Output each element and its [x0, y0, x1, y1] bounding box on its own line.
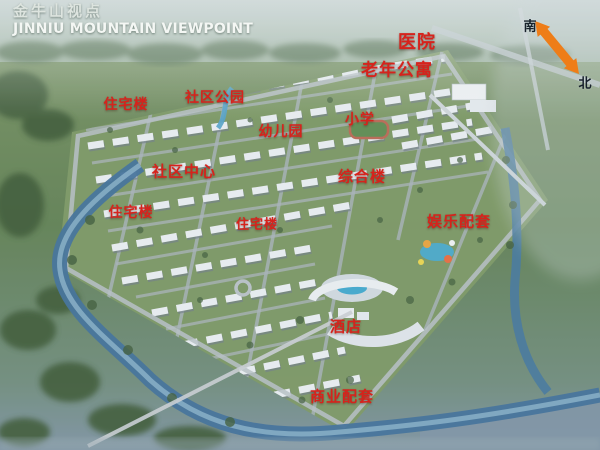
- aerial-scene: [0, 0, 600, 450]
- desaturation-veil: [0, 0, 600, 450]
- map-label-entertainment: 娱乐配套: [427, 211, 491, 232]
- compass-north-label: 北: [578, 73, 591, 92]
- map-label-primary-school: 小学: [345, 109, 375, 129]
- compass-south-label: 南: [523, 16, 536, 35]
- viewpoint-title-zh: 金牛山视点: [13, 3, 253, 20]
- map-label-commercial: 商业配套: [310, 386, 374, 407]
- map-label-residential-2: 住宅楼: [109, 202, 154, 222]
- map-label-residential-1: 住宅楼: [104, 94, 149, 114]
- aerial-masterplan-image: 金牛山视点 JINNIU MOUNTAIN VIEWPOINT 南 北 医院 老…: [0, 0, 600, 450]
- map-label-senior-apartments: 老年公寓: [361, 56, 433, 81]
- map-label-community-park: 社区公园: [185, 87, 245, 107]
- map-label-residential-3: 住宅楼: [236, 214, 278, 233]
- map-label-kindergarten: 幼儿园: [259, 121, 304, 141]
- map-label-hotel: 酒店: [330, 316, 362, 337]
- map-label-community-center: 社区中心: [152, 161, 216, 182]
- map-label-mixed-use: 综合楼: [338, 166, 386, 187]
- map-label-hospital: 医院: [398, 28, 436, 54]
- viewpoint-title: 金牛山视点 JINNIU MOUNTAIN VIEWPOINT: [13, 3, 253, 37]
- viewpoint-title-en: JINNIU MOUNTAIN VIEWPOINT: [13, 21, 253, 37]
